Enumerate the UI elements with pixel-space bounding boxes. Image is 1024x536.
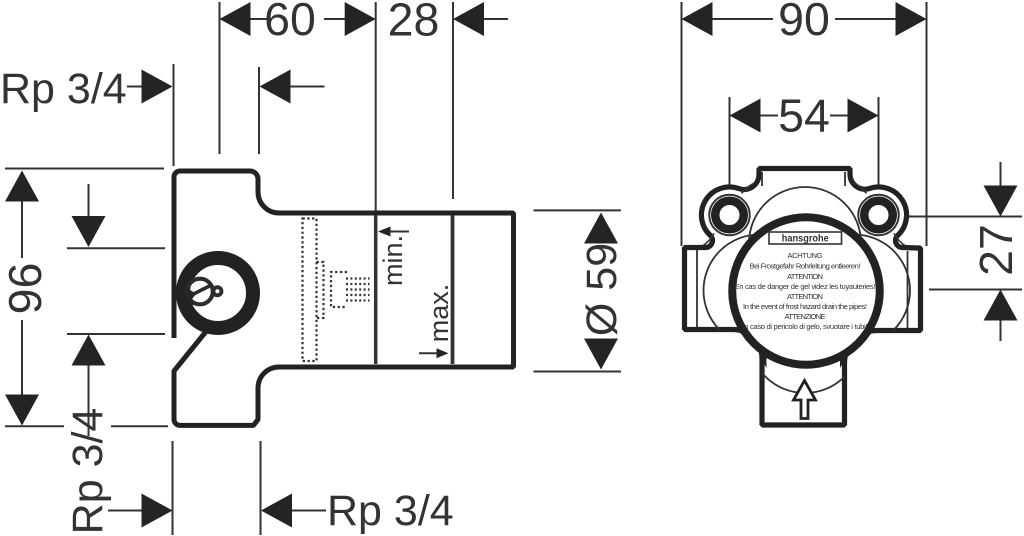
svg-text:Rp 3/4: Rp 3/4 <box>64 408 112 535</box>
svg-text:Ø 59: Ø 59 <box>578 243 626 336</box>
svg-text:ATTENTION: ATTENTION <box>787 272 823 281</box>
svg-text:27: 27 <box>970 224 1022 276</box>
svg-text:96: 96 <box>0 263 51 315</box>
svg-text:ATTENZIONE: ATTENZIONE <box>785 312 826 321</box>
svg-text:In caso di pericolo di gelo, s: In caso di pericolo di gelo, svuotare i … <box>743 322 868 331</box>
svg-text:max.: max. <box>424 284 454 343</box>
svg-text:54: 54 <box>778 90 830 142</box>
svg-text:28: 28 <box>388 0 440 46</box>
svg-text:60: 60 <box>264 0 316 45</box>
svg-text:ATTENTION: ATTENTION <box>787 292 823 301</box>
svg-text:90: 90 <box>778 0 830 45</box>
svg-text:In the event of frost hazard d: In the event of frost hazard drain the p… <box>743 302 867 311</box>
svg-text:min.: min. <box>378 235 408 286</box>
svg-text:ACHTUNG: ACHTUNG <box>788 251 823 260</box>
svg-text:hansgrohe: hansgrohe <box>782 232 829 244</box>
svg-text:Bei Frostgefahr Rohrleitung en: Bei Frostgefahr Rohrleitung entleeren! <box>750 262 861 271</box>
svg-text:Rp 3/4: Rp 3/4 <box>327 487 454 535</box>
svg-text:Rp 3/4: Rp 3/4 <box>0 65 127 113</box>
svg-text:En cas de danger de gel videz: En cas de danger de gel videz les tuyaut… <box>735 282 876 291</box>
